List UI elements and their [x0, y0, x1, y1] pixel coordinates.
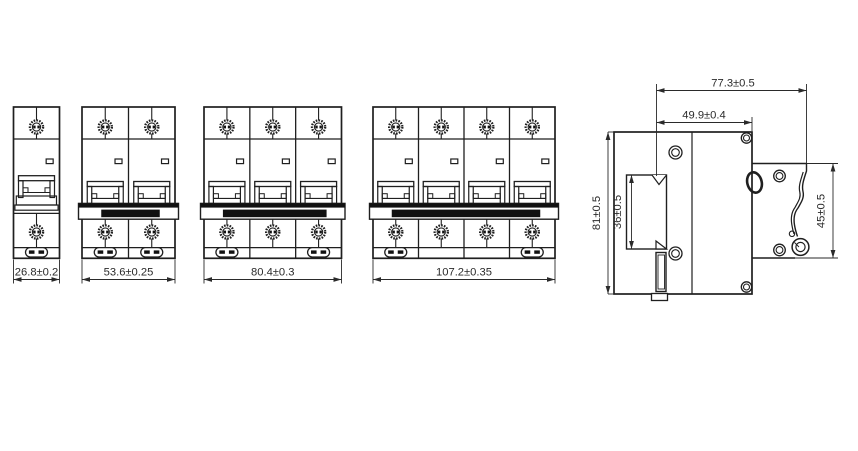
- toggle-handle: [87, 182, 123, 204]
- screw-slot-gap: [440, 126, 442, 129]
- screw-slot-gap: [531, 126, 533, 129]
- screw-slot-gap: [36, 231, 38, 234]
- mounting-tab: [308, 248, 330, 257]
- toggle-tip-bar: [423, 182, 459, 187]
- screw-slot-gap: [531, 231, 533, 234]
- toggle-handle: [255, 182, 291, 204]
- terminal-screw-icon: [99, 120, 112, 133]
- indicator-window: [237, 159, 244, 164]
- toggle-handle: [423, 182, 459, 204]
- indicator-window: [162, 159, 169, 164]
- screw-slot-gap: [440, 231, 442, 234]
- toggle-foot-right: [541, 194, 546, 199]
- front-view-3-pole: 80.4±0.3: [201, 107, 346, 284]
- din-clip-foot: [652, 294, 668, 301]
- screw-slot-gap: [104, 231, 106, 234]
- toggle-foot-right: [114, 194, 119, 199]
- toggle-rail-right: [286, 187, 291, 204]
- toggle-tip-bar: [301, 182, 337, 187]
- toggle-handle: [134, 182, 170, 204]
- mounting-tab: [385, 248, 407, 257]
- terminal-screw-icon: [220, 120, 233, 133]
- toggle-tip-bar: [19, 176, 55, 181]
- width-dimension: 107.2±0.35: [373, 260, 555, 284]
- rivet-icon: [741, 282, 751, 292]
- tie-bar: [392, 210, 541, 218]
- dimension-arrowhead: [629, 175, 634, 183]
- screw-slot-gap: [486, 231, 488, 234]
- indicator-window: [496, 159, 503, 164]
- terminal-screw-icon: [389, 120, 402, 133]
- dimension-arrowhead: [606, 286, 611, 294]
- rivet-outer: [741, 133, 751, 143]
- tab-outline: [216, 248, 238, 257]
- rivet-outer: [774, 170, 786, 182]
- dimension-label: 49.9±0.4: [682, 110, 725, 122]
- rivet-icon: [669, 146, 682, 159]
- tab-outline: [26, 248, 48, 257]
- mounting-tab: [141, 248, 163, 257]
- toggle-rail-right: [119, 187, 124, 204]
- indicator-window: [282, 159, 289, 164]
- toggle-tie-bar: [79, 203, 179, 219]
- toggle-rail-right: [240, 187, 245, 204]
- screw-slot-gap: [226, 231, 228, 234]
- tab-slot-right: [534, 250, 540, 253]
- dimension-arrowhead: [82, 277, 90, 282]
- toggle-tip-bar: [378, 182, 414, 187]
- toggle-foot-right: [235, 194, 240, 199]
- technical-drawing: 26.8±0.253.6±0.2580.4±0.3107.2±0.3577.3±…: [0, 0, 858, 451]
- toggle-rail-left: [469, 187, 474, 204]
- tie-bar-top-strip: [201, 203, 346, 207]
- toggle-handle: [301, 182, 337, 204]
- toggle-rail-left: [87, 187, 92, 204]
- front-view-2-pole: 53.6±0.25: [79, 107, 179, 284]
- dimension-arrowhead: [334, 277, 342, 282]
- toggle-handle: [469, 182, 505, 204]
- toggle-tip-bar: [87, 182, 123, 187]
- terminal-screw-icon: [266, 120, 279, 133]
- dimension-arrowhead: [167, 277, 175, 282]
- toggle-foot-left: [259, 194, 264, 199]
- indicator-window: [46, 159, 53, 164]
- toggle-foot-right: [495, 194, 500, 199]
- indicator-window: [115, 159, 122, 164]
- terminal-screw-icon: [145, 120, 158, 133]
- terminal-screw-icon: [389, 225, 402, 238]
- toggle-tip-bar: [255, 182, 291, 187]
- tab-slot-right: [398, 250, 404, 253]
- tab-slot-left: [144, 250, 150, 253]
- toggle-rail-left: [19, 181, 24, 198]
- dimension-label: 107.2±0.35: [436, 266, 492, 278]
- width-dimension: 80.4±0.3: [204, 260, 342, 284]
- mounting-tab: [216, 248, 238, 257]
- terminal-screw-icon: [526, 120, 539, 133]
- toggle-foot-right: [404, 194, 409, 199]
- toggle-rail-right: [50, 181, 55, 198]
- tie-bar-top-strip: [79, 203, 179, 207]
- terminal-screw-icon: [526, 225, 539, 238]
- toggle-tip-bar: [209, 182, 245, 187]
- terminal-screw-icon: [145, 225, 158, 238]
- screw-slot-gap: [395, 126, 397, 129]
- terminal-screw-icon: [30, 225, 43, 238]
- dimension-arrowhead: [657, 88, 665, 93]
- tab-slot-left: [525, 250, 531, 253]
- tab-slot-right: [154, 250, 160, 253]
- toggle-handle: [514, 182, 550, 204]
- screw-slot-gap: [226, 126, 228, 129]
- toggle-foot-left: [428, 194, 433, 199]
- dimension-label: 45±0.5: [816, 194, 828, 228]
- dimension-arrowhead: [204, 277, 212, 282]
- terminal-screw-icon: [99, 225, 112, 238]
- din-hook-notch: [652, 175, 667, 185]
- dimension-arrowhead: [831, 164, 836, 172]
- dimension-label: 81±0.5: [591, 196, 603, 230]
- dimension-arrowhead: [606, 132, 611, 140]
- screw-slot-gap: [318, 231, 320, 234]
- rivet-icon: [741, 133, 751, 143]
- dimension-label: 53.6±0.25: [104, 266, 154, 278]
- screw-slot-gap: [486, 126, 488, 129]
- toggle-tie-bar: [370, 203, 559, 219]
- toggle-tie-bar: [201, 203, 346, 219]
- toggle-foot-right: [281, 194, 286, 199]
- tab-slot-right: [39, 250, 45, 253]
- rivet-icon: [774, 244, 786, 256]
- tab-slot-right: [229, 250, 235, 253]
- toggle-knob-outer: [792, 239, 809, 256]
- toggle-profile-outer: [794, 164, 806, 237]
- indicator-window: [542, 159, 549, 164]
- front-view-1-pole: 26.8±0.2: [14, 107, 60, 284]
- toggle-foot-left: [213, 194, 218, 199]
- tie-bar-top-strip: [370, 203, 559, 207]
- terminal-screw-icon: [30, 120, 43, 133]
- tab-outline: [308, 248, 330, 257]
- dimension-label: 77.3±0.5: [711, 78, 754, 90]
- dimension-arrowhead: [373, 277, 381, 282]
- toggle-tip-bar: [514, 182, 550, 187]
- width-dimension: 26.8±0.2: [14, 260, 60, 284]
- toggle-rail-right: [165, 187, 170, 204]
- toggle-rail-right: [409, 187, 414, 204]
- terminal-screw-icon: [312, 225, 325, 238]
- toggle-foot-left: [519, 194, 524, 199]
- side-view: 77.3±0.549.9±0.481±0.536±0.545±0.5: [591, 78, 838, 301]
- tie-bar: [223, 210, 327, 218]
- toggle-rail-left: [209, 187, 214, 204]
- toggle-rail-right: [546, 187, 551, 204]
- toggle-rail-right: [332, 187, 337, 204]
- dimension-arrowhead: [657, 120, 665, 125]
- terminal-screw-icon: [480, 120, 493, 133]
- screw-slot-gap: [272, 231, 274, 234]
- mounting-tab: [94, 248, 116, 257]
- screw-slot-gap: [395, 231, 397, 234]
- front-view-4-pole: 107.2±0.35: [370, 107, 559, 284]
- dimension-label: 80.4±0.3: [251, 266, 294, 278]
- rivet-icon: [669, 247, 682, 260]
- tab-outline: [141, 248, 163, 257]
- tab-outline: [94, 248, 116, 257]
- mounting-tab: [26, 248, 48, 257]
- toggle-foot-right: [450, 194, 455, 199]
- rivet-icon: [774, 170, 786, 182]
- tab-slot-right: [321, 250, 327, 253]
- toggle-rail-left: [134, 187, 139, 204]
- screw-slot-gap: [151, 126, 153, 129]
- indicator-window: [328, 159, 335, 164]
- toggle-foot-left: [473, 194, 478, 199]
- din-rail-slot: [627, 175, 667, 249]
- dimension-label: 26.8±0.2: [15, 266, 58, 278]
- tab-slot-right: [107, 250, 113, 253]
- tab-slot-left: [98, 250, 104, 253]
- indicator-window: [451, 159, 458, 164]
- dimension-label: 36±0.5: [612, 195, 624, 229]
- rivet-outer: [741, 282, 751, 292]
- rivet-outer: [669, 146, 682, 159]
- toggle-handle: [209, 182, 245, 204]
- tab-slot-left: [29, 250, 35, 253]
- terminal-screw-icon: [435, 120, 448, 133]
- dimension-arrowhead: [629, 241, 634, 249]
- tie-bar: [101, 210, 160, 218]
- toggle-handle: [378, 182, 414, 204]
- toggle-rail-left: [423, 187, 428, 204]
- toggle-foot-left: [92, 194, 97, 199]
- toggle-rail-left: [514, 187, 519, 204]
- screw-slot-gap: [104, 126, 106, 129]
- side-dimensions: 77.3±0.549.9±0.481±0.536±0.545±0.5: [591, 78, 838, 295]
- toggle-rail-right: [455, 187, 460, 204]
- dimension-arrowhead: [744, 120, 752, 125]
- toggle-rail-left: [255, 187, 260, 204]
- dimension-arrowhead: [547, 277, 555, 282]
- toggle-rail-left: [301, 187, 306, 204]
- tab-outline: [521, 248, 543, 257]
- din-hook-lower: [656, 241, 667, 249]
- screw-slot-gap: [318, 126, 320, 129]
- terminal-screw-icon: [480, 225, 493, 238]
- toggle-rail-right: [500, 187, 505, 204]
- toggle-foot-right: [45, 188, 50, 193]
- tab-outline: [385, 248, 407, 257]
- terminal-screw-icon: [220, 225, 233, 238]
- indicator-window: [405, 159, 412, 164]
- toggle-foot-left: [382, 194, 387, 199]
- mounting-tab: [521, 248, 543, 257]
- toggle-foot-left: [23, 188, 28, 193]
- circuit-breaker-dimension-drawing: 26.8±0.253.6±0.2580.4±0.3107.2±0.3577.3±…: [0, 0, 858, 451]
- toggle-foot-left: [305, 194, 310, 199]
- toggle-foot-left: [138, 194, 143, 199]
- screw-slot-gap: [151, 231, 153, 234]
- screw-slot-gap: [272, 126, 274, 129]
- tab-slot-left: [388, 250, 394, 253]
- side-body-outline: [614, 132, 752, 294]
- toggle-pedestal: [15, 205, 58, 210]
- terminal-screw-icon: [435, 225, 448, 238]
- terminal-screw-icon: [266, 225, 279, 238]
- dimension-arrowhead: [831, 250, 836, 258]
- toggle-handle: [19, 176, 55, 198]
- dimension-arrowhead: [799, 88, 807, 93]
- seal-hole-oval: [745, 171, 764, 194]
- terminal-screw-icon: [312, 120, 325, 133]
- toggle-foot-right: [327, 194, 332, 199]
- screw-slot-gap: [36, 126, 38, 129]
- toggle-foot-right: [160, 194, 165, 199]
- rivet-outer: [774, 244, 786, 256]
- tab-slot-left: [219, 250, 225, 253]
- rivet-outer: [669, 247, 682, 260]
- toggle-tip-bar: [469, 182, 505, 187]
- width-dimension: 53.6±0.25: [82, 260, 175, 284]
- toggle-tip-bar: [134, 182, 170, 187]
- toggle-rail-left: [378, 187, 383, 204]
- tab-slot-left: [311, 250, 317, 253]
